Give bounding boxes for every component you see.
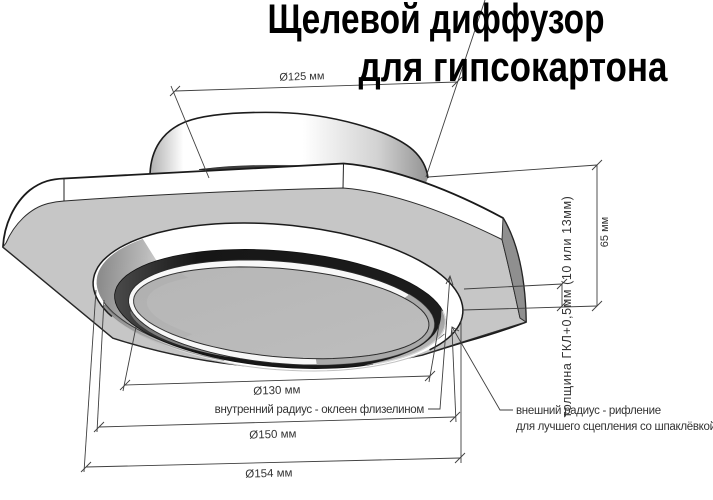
svg-text:для гипсокартона: для гипсокартона xyxy=(359,43,669,90)
svg-text:Щелевой диффузор: Щелевой диффузор xyxy=(268,0,605,42)
svg-text:толщина ГКЛ+0,5мм (10 или 13мм: толщина ГКЛ+0,5мм (10 или 13мм) xyxy=(560,196,574,418)
svg-text:Ø154 мм: Ø154 мм xyxy=(245,467,293,480)
svg-text:Ø130 мм: Ø130 мм xyxy=(253,384,301,397)
svg-text:65 мм: 65 мм xyxy=(599,217,611,247)
svg-text:Ø125 мм: Ø125 мм xyxy=(279,70,324,84)
svg-text:внутренний радиус - оклеен фли: внутренний радиус - оклеен флизелином xyxy=(215,404,425,416)
svg-text:Ø150 мм: Ø150 мм xyxy=(249,428,297,441)
svg-text:для лучшего сцепления со шпакл: для лучшего сцепления со шпаклёвкой xyxy=(516,421,713,433)
svg-text:внешний радиус - рифление: внешний радиус - рифление xyxy=(516,405,661,417)
